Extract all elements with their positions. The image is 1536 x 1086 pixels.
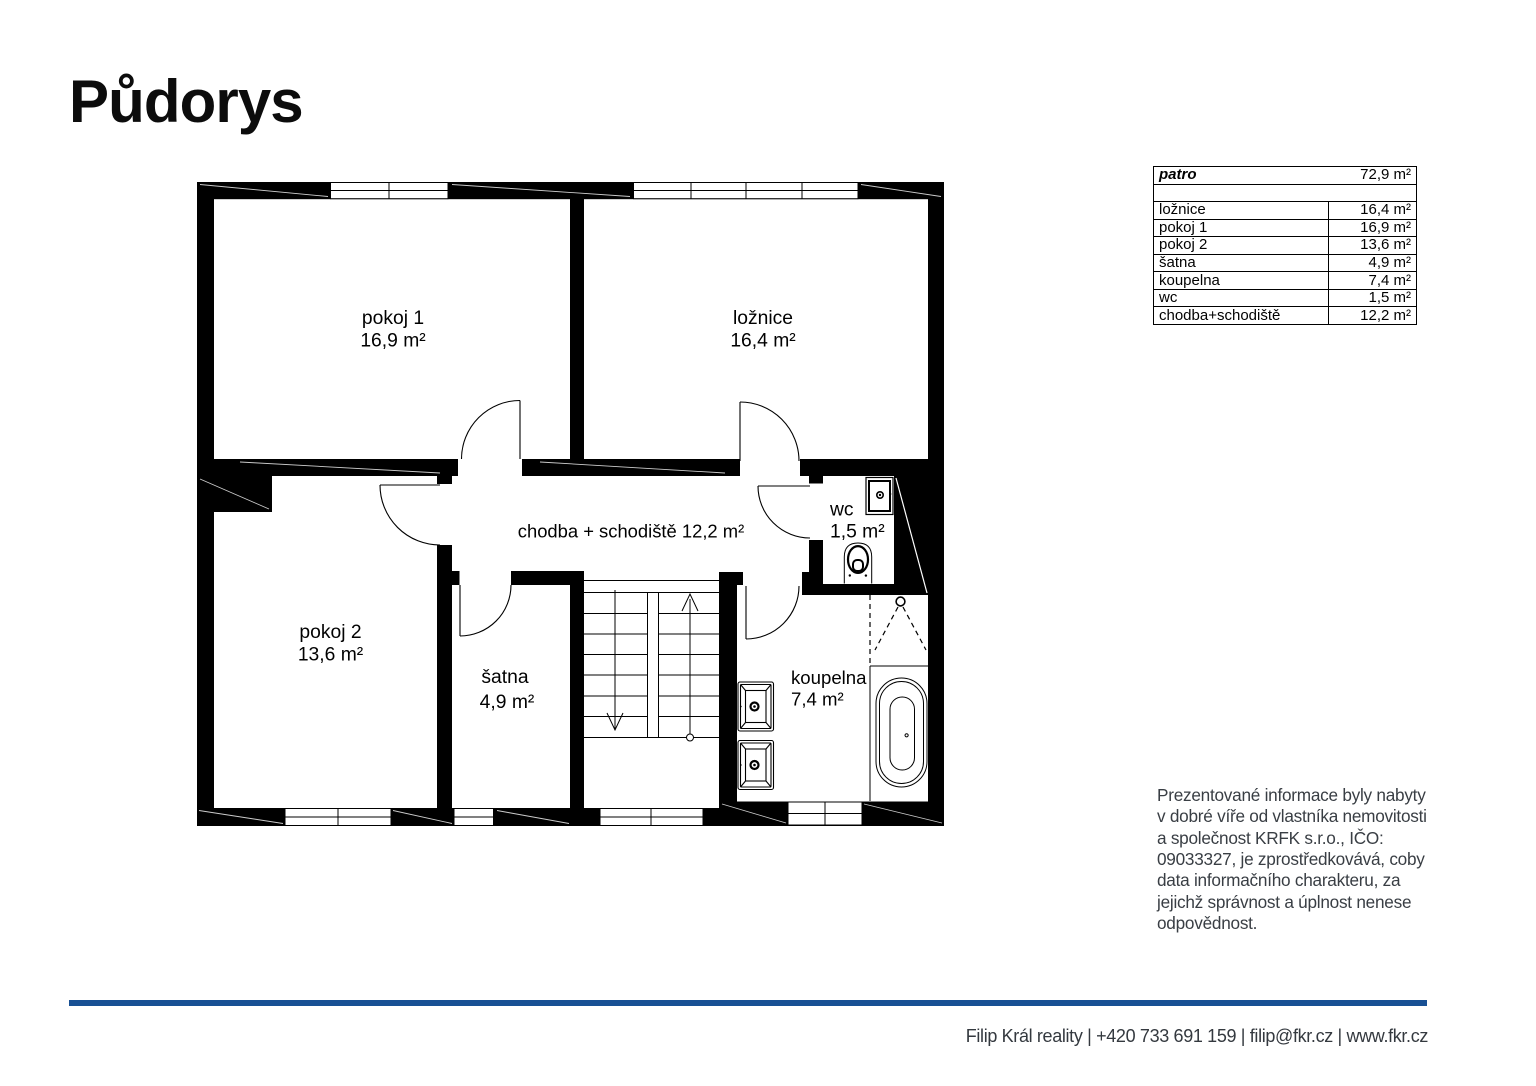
svg-text:chodba + schodiště 12,2 m²: chodba + schodiště 12,2 m² <box>518 521 744 542</box>
svg-text:pokoj 2: pokoj 2 <box>299 622 361 643</box>
svg-text:13,6 m²: 13,6 m² <box>298 645 364 666</box>
svg-text:wc: wc <box>829 500 854 521</box>
svg-text:ložnice: ložnice <box>733 308 793 329</box>
svg-text:16,4 m²: 16,4 m² <box>730 331 796 352</box>
svg-text:pokoj 1: pokoj 1 <box>362 308 424 329</box>
svg-text:šatna: šatna <box>481 667 528 688</box>
svg-text:4,9 m²: 4,9 m² <box>480 692 535 713</box>
svg-text:koupelna: koupelna <box>791 667 867 688</box>
svg-text:7,4 m²: 7,4 m² <box>791 689 844 710</box>
svg-text:16,9 m²: 16,9 m² <box>360 331 426 352</box>
svg-text:1,5 m²: 1,5 m² <box>830 522 885 543</box>
